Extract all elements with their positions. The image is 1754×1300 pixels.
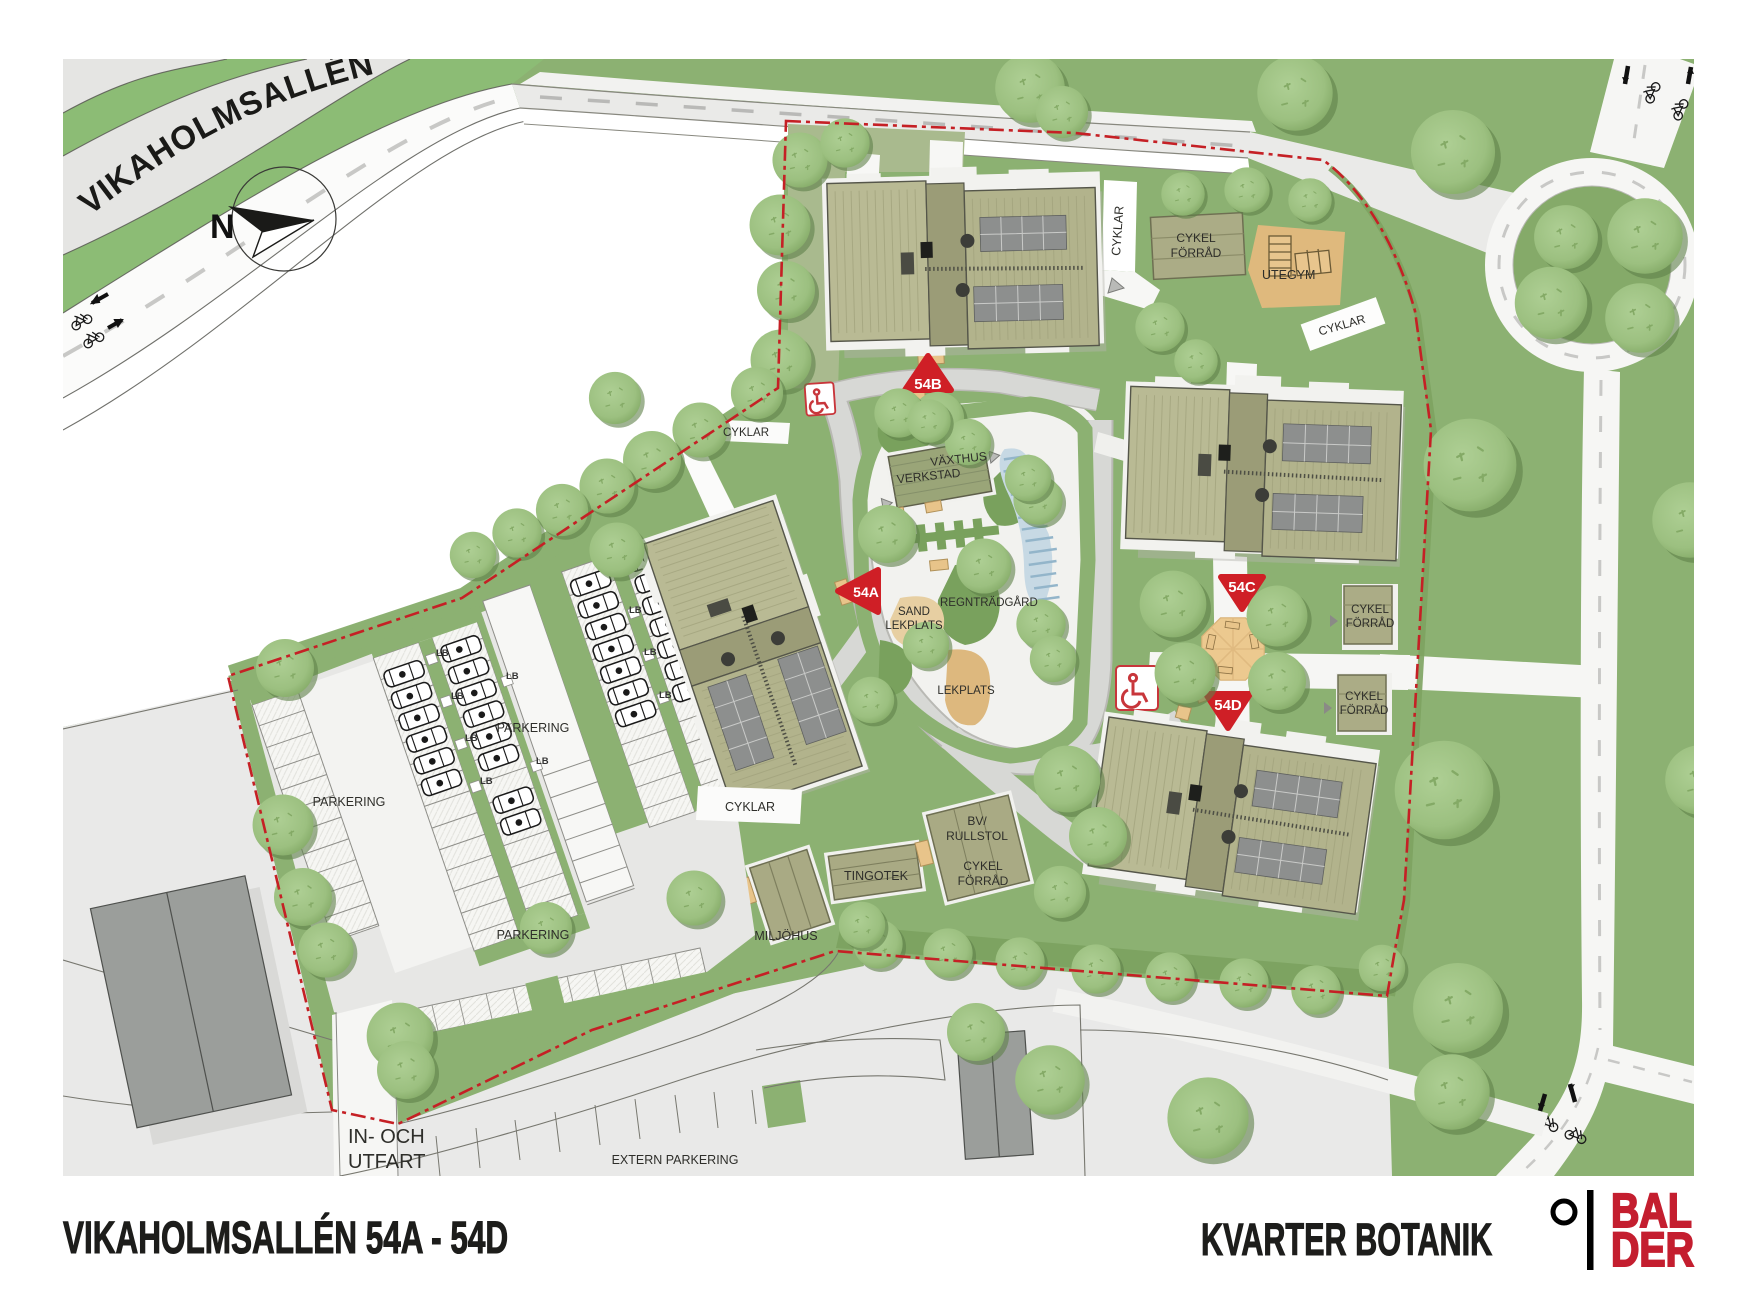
- svg-text:DER: DER: [1611, 1223, 1694, 1277]
